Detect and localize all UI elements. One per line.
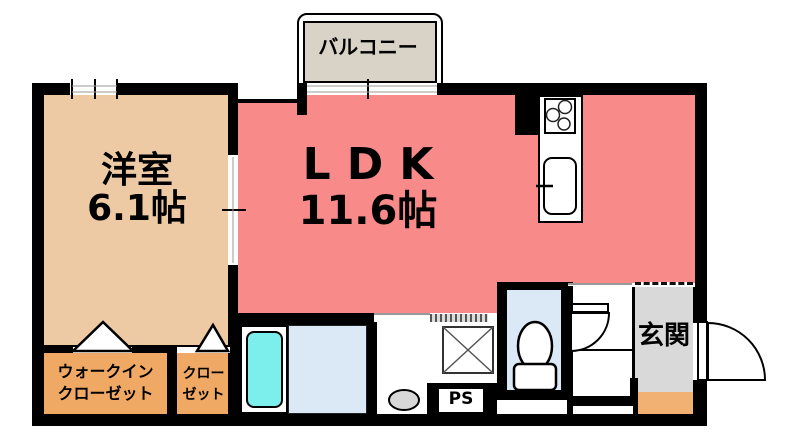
window-corner-box — [238, 83, 297, 99]
balcony-sliding-door-icon — [307, 83, 437, 95]
kitchen-counter — [538, 95, 583, 223]
entrance-door-leaf — [697, 321, 708, 381]
wall — [565, 396, 633, 406]
room-corridor — [377, 322, 497, 383]
wall — [367, 322, 377, 414]
walk-in-closet-label: ウォークイン クローゼット — [44, 361, 167, 406]
room-western-label: 洋室 6.1帖 — [44, 152, 230, 228]
balcony-label: バルコニー — [303, 37, 433, 58]
wall — [297, 83, 307, 115]
closet-label: クロー ゼット — [177, 364, 230, 406]
accordion-door-icon — [430, 314, 488, 322]
wall — [693, 380, 707, 426]
wall — [437, 83, 707, 95]
wall — [515, 95, 538, 135]
room-western-name: 洋室 — [44, 152, 230, 190]
wall — [167, 353, 177, 414]
closet-opening — [177, 347, 230, 353]
room-ldk-name: LDK — [254, 142, 498, 188]
wall — [32, 83, 44, 426]
closet-opening — [73, 347, 132, 353]
room-corridor-lower — [377, 383, 427, 414]
room-washroom — [288, 325, 367, 414]
wall — [497, 390, 573, 400]
ldk-opening — [374, 313, 430, 322]
wall — [497, 282, 570, 290]
closet-line1: クロー — [177, 364, 230, 385]
step-line — [567, 349, 632, 351]
room-western-size: 6.1帖 — [44, 190, 230, 228]
wall — [32, 414, 707, 426]
room-ldk-size: 11.6帖 — [238, 190, 498, 232]
entrance-dashed-line — [635, 282, 693, 286]
bathtub-icon — [246, 331, 283, 408]
wall — [497, 282, 507, 400]
room-toilet — [507, 290, 561, 390]
entrance-step — [635, 392, 693, 414]
wall — [695, 83, 707, 290]
floor-sliver — [573, 406, 633, 414]
wall — [561, 282, 573, 400]
wall — [32, 83, 238, 95]
closet-line2: ゼット — [177, 385, 230, 406]
room-ldk-label: LDK 11.6帖 — [238, 142, 498, 232]
wall — [228, 313, 374, 325]
entrance-door-swing-icon — [708, 323, 765, 380]
floor-sliver — [503, 400, 567, 414]
walk-in-closet-line1: ウォークイン — [44, 361, 167, 383]
threshold-line — [568, 283, 632, 286]
sliding-window-icon — [70, 83, 117, 95]
floor-plan: バルコニー — [0, 0, 800, 439]
walk-in-closet-line2: クローゼット — [44, 383, 167, 405]
door-leaf — [571, 303, 609, 313]
pipe-space-label: PS — [439, 391, 483, 409]
wall — [693, 287, 707, 323]
entrance-label: 玄関 — [633, 323, 695, 350]
room-ldk-lower — [238, 283, 497, 313]
